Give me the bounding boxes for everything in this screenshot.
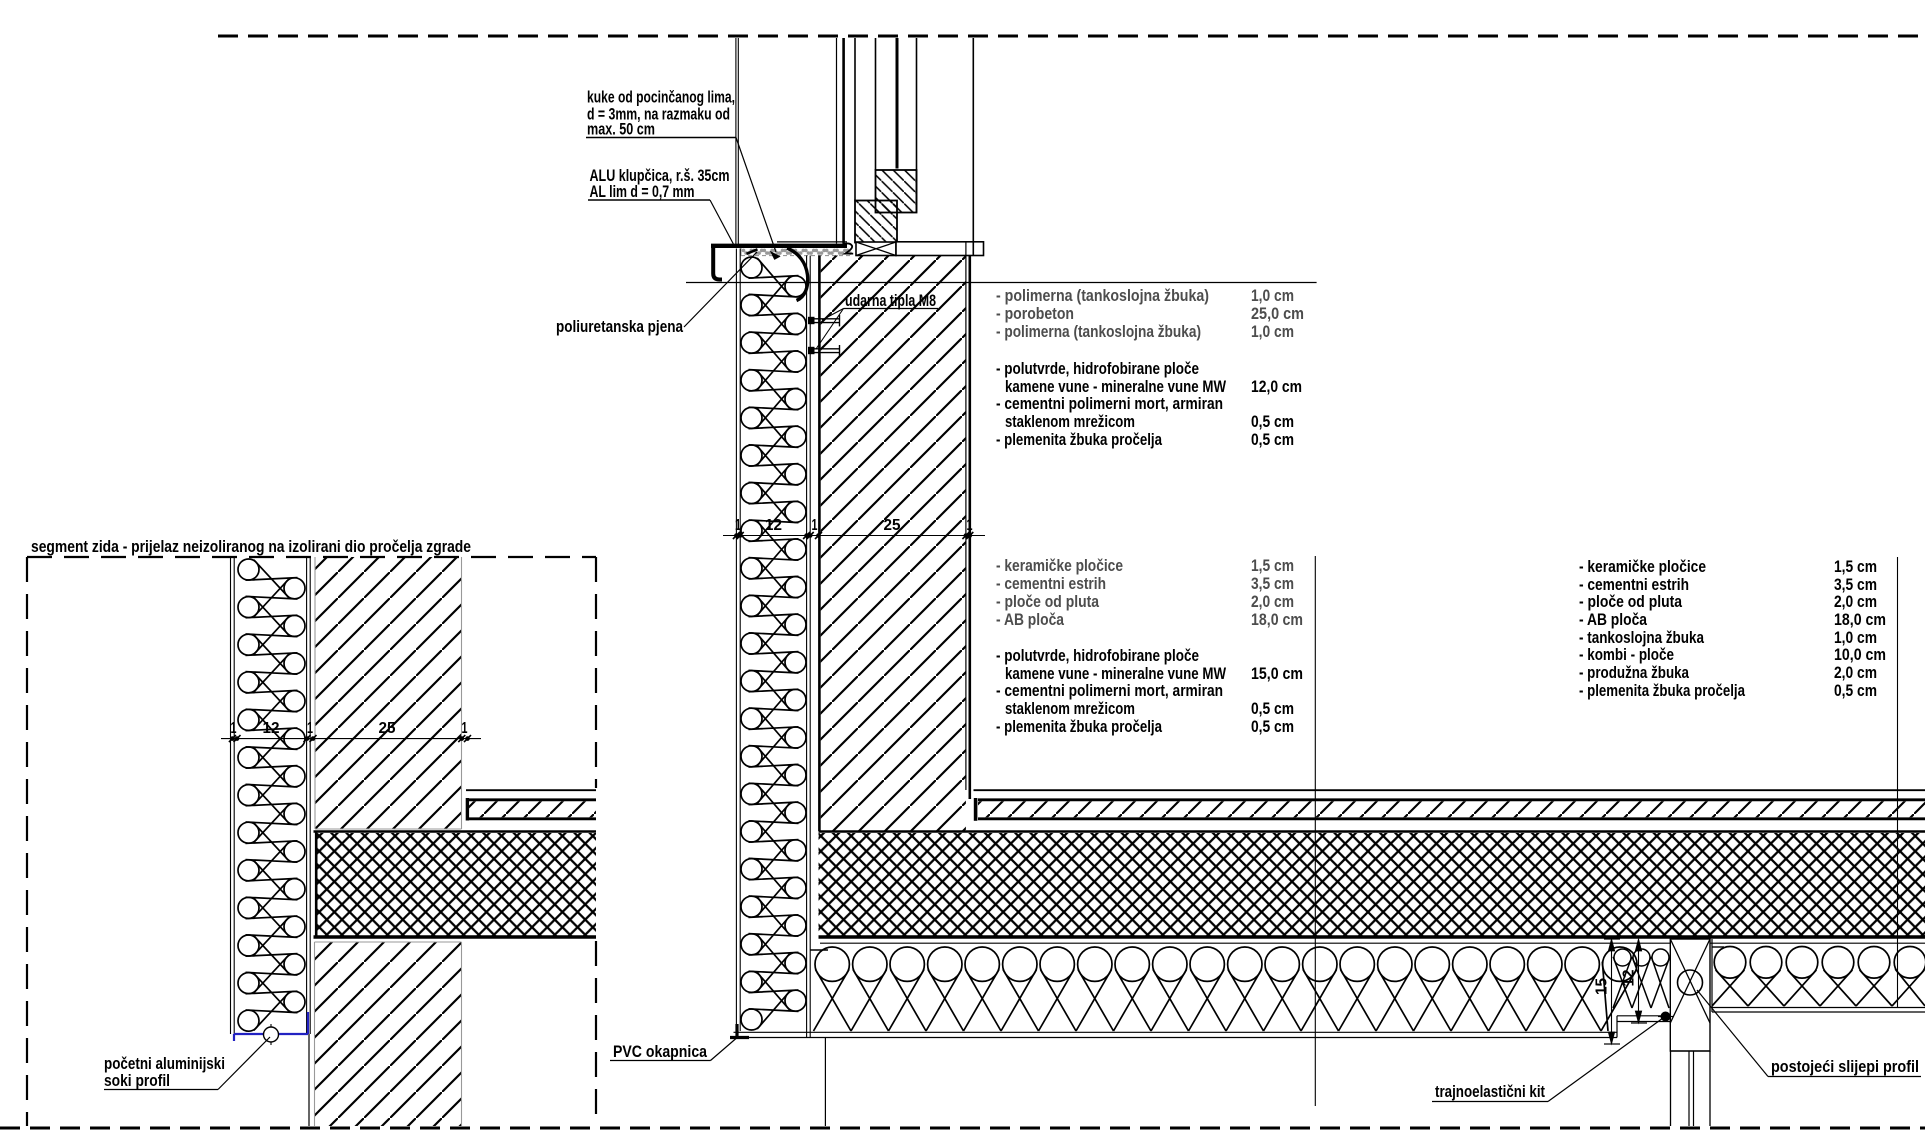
svg-text:poliuretanska pjena: poliuretanska pjena [556, 317, 683, 336]
svg-text:12: 12 [263, 720, 280, 737]
svg-text:1,0 cm: 1,0 cm [1251, 286, 1294, 305]
svg-text:1: 1 [462, 720, 468, 737]
svg-text:AL lim d = 0,7 mm: AL lim d = 0,7 mm [590, 182, 695, 201]
svg-text:staklenom mrežicom: staklenom mrežicom [1005, 412, 1135, 431]
svg-text:max. 50 cm: max. 50 cm [587, 120, 655, 139]
svg-text:1: 1 [967, 517, 973, 534]
svg-text:12: 12 [1621, 969, 1638, 986]
svg-text:10,0 cm: 10,0 cm [1834, 645, 1886, 664]
svg-text:- cementni estrih: - cementni estrih [996, 574, 1106, 593]
svg-text:staklenom mrežicom: staklenom mrežicom [1005, 699, 1135, 718]
svg-text:18,0 cm: 18,0 cm [1251, 610, 1303, 629]
svg-text:- polimerna (tankoslojna žbuk: - polimerna (tankoslojna žbuka) [996, 286, 1209, 305]
svg-text:PVC okapnica: PVC okapnica [613, 1042, 707, 1061]
svg-text:- kombi - ploče: - kombi - ploče [1579, 645, 1674, 664]
svg-text:segment zida - prijelaz neizol: segment zida - prijelaz neizoliranog na … [31, 537, 471, 556]
svg-text:1: 1 [812, 517, 818, 534]
svg-text:- AB ploča: - AB ploča [1579, 610, 1647, 629]
svg-text:- plemenita žbuka pročelja: - plemenita žbuka pročelja [996, 717, 1162, 736]
svg-text:25: 25 [379, 720, 396, 737]
svg-text:1: 1 [231, 720, 237, 737]
svg-text:- ploče od pluta: - ploče od pluta [996, 592, 1099, 611]
svg-text:- polimerna (tankoslojna žbuka: - polimerna (tankoslojna žbuka) [996, 322, 1201, 341]
svg-text:0,5 cm: 0,5 cm [1251, 412, 1294, 431]
svg-text:- porobeton: - porobeton [996, 304, 1074, 323]
svg-text:soki profil: soki profil [104, 1071, 170, 1090]
svg-text:- ploče od pluta: - ploče od pluta [1579, 592, 1682, 611]
svg-text:- keramičke pločice: - keramičke pločice [1579, 557, 1706, 576]
svg-text:15,0 cm: 15,0 cm [1251, 664, 1303, 683]
svg-text:1,5 cm: 1,5 cm [1251, 556, 1294, 575]
svg-text:1,0 cm: 1,0 cm [1251, 322, 1294, 341]
svg-text:0,5 cm: 0,5 cm [1251, 717, 1294, 736]
svg-text:- polutvrde, hidrofobirane plo: - polutvrde, hidrofobirane ploče [996, 646, 1199, 665]
svg-text:udarna tipla M8: udarna tipla M8 [845, 291, 936, 310]
svg-text:15: 15 [1594, 978, 1611, 995]
svg-text:1,5 cm: 1,5 cm [1834, 557, 1877, 576]
svg-text:- plemenita žbuka pročelja: - plemenita žbuka pročelja [1579, 681, 1745, 700]
svg-text:25: 25 [884, 517, 901, 534]
svg-text:18,0 cm: 18,0 cm [1834, 610, 1886, 629]
svg-text:3,5 cm: 3,5 cm [1251, 574, 1294, 593]
svg-text:- keramičke pločice: - keramičke pločice [996, 556, 1123, 575]
svg-text:postojeći slijepi profil: postojeći slijepi profil [1771, 1057, 1919, 1076]
svg-text:- polutvrde, hidrofobirane plo: - polutvrde, hidrofobirane ploče [996, 359, 1199, 378]
svg-text:2,0 cm: 2,0 cm [1834, 592, 1877, 611]
svg-text:2,0 cm: 2,0 cm [1251, 592, 1294, 611]
svg-text:1: 1 [735, 517, 741, 534]
svg-text:- cementni polimerni mort, arm: - cementni polimerni mort, armiran [996, 681, 1223, 700]
svg-text:2,0 cm: 2,0 cm [1834, 663, 1877, 682]
svg-text:0,5 cm: 0,5 cm [1834, 681, 1877, 700]
svg-text:- cementni polimerni mort, arm: - cementni polimerni mort, armiran [996, 394, 1223, 413]
svg-text:- AB ploča: - AB ploča [996, 610, 1064, 629]
svg-text:12,0 cm: 12,0 cm [1251, 377, 1302, 396]
svg-text:1: 1 [307, 720, 313, 737]
svg-text:- plemenita žbuka pročelja: - plemenita žbuka pročelja [996, 430, 1162, 449]
svg-text:12: 12 [765, 517, 782, 534]
svg-text:trajnoelastični kit: trajnoelastični kit [1435, 1082, 1545, 1101]
svg-text:- produžna žbuka: - produžna žbuka [1579, 663, 1689, 682]
svg-text:0,5 cm: 0,5 cm [1251, 699, 1294, 718]
svg-text:0,5 cm: 0,5 cm [1251, 430, 1294, 449]
svg-text:25,0 cm: 25,0 cm [1251, 304, 1304, 323]
